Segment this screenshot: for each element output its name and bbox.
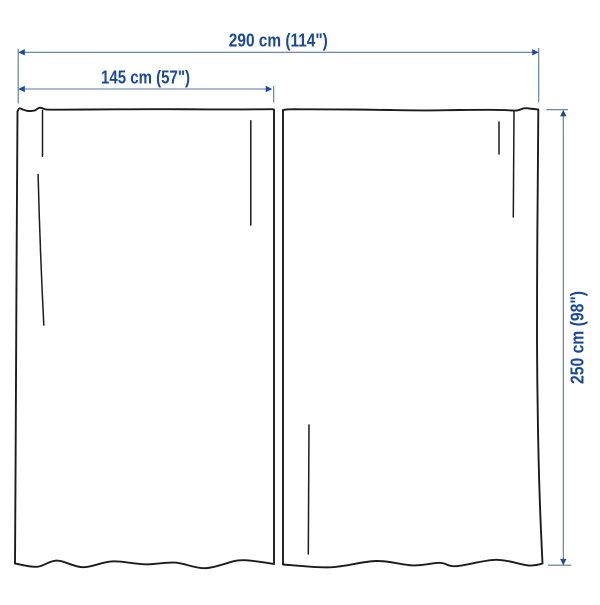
- svg-text:250 cm (98"): 250 cm (98"): [567, 291, 588, 384]
- svg-text:290 cm (114"): 290 cm (114"): [229, 29, 328, 50]
- svg-text:145 cm (57"): 145 cm (57"): [101, 66, 190, 87]
